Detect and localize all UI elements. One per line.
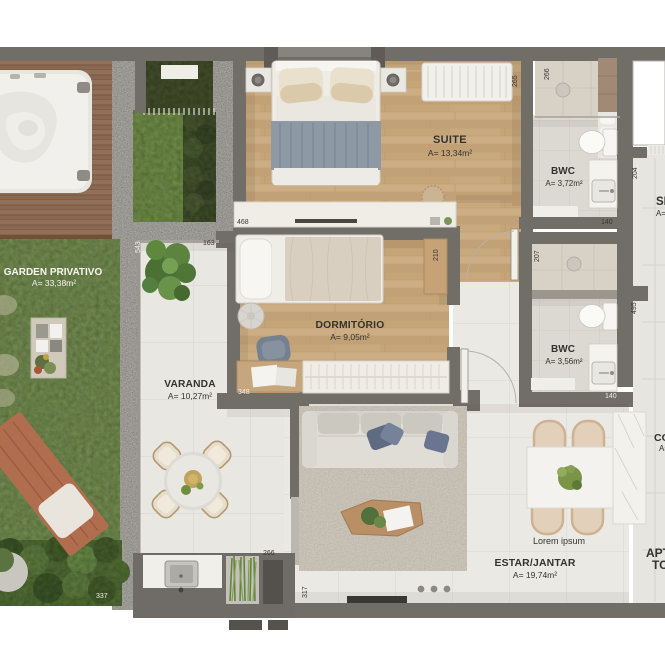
svg-text:140: 140	[601, 219, 613, 226]
svg-text:SE: SE	[656, 196, 665, 208]
svg-text:468: 468	[237, 219, 249, 226]
svg-text:A= 3,56m²: A= 3,56m²	[545, 357, 582, 366]
svg-text:204: 204	[632, 167, 639, 179]
svg-text:COZ: COZ	[654, 432, 665, 444]
svg-text:A=: A=	[659, 444, 665, 453]
svg-text:495: 495	[631, 302, 638, 314]
svg-text:A= 3,72m²: A= 3,72m²	[545, 179, 582, 188]
svg-text:BWC: BWC	[551, 344, 575, 355]
svg-text:140: 140	[605, 393, 617, 400]
svg-text:A= 33,38m²: A= 33,38m²	[32, 278, 76, 288]
svg-text:317: 317	[302, 586, 309, 598]
svg-text:Lorem ipsum: Lorem ipsum	[533, 536, 585, 546]
svg-text:163: 163	[203, 240, 215, 247]
svg-text:VARANDA: VARANDA	[164, 379, 216, 390]
svg-text:GARDEN PRIVATIVO: GARDEN PRIVATIVO	[4, 267, 103, 278]
svg-text:ESTAR/JANTAR: ESTAR/JANTAR	[494, 558, 575, 569]
svg-text:A= 9,05m²: A= 9,05m²	[330, 332, 370, 342]
svg-text:266: 266	[544, 68, 551, 80]
svg-text:207: 207	[534, 250, 541, 262]
svg-text:BWC: BWC	[551, 166, 575, 177]
svg-text:543: 543	[135, 241, 142, 253]
svg-text:SUITE: SUITE	[433, 134, 467, 146]
svg-text:DORMITÓRIO: DORMITÓRIO	[316, 318, 385, 331]
svg-text:265: 265	[512, 75, 519, 87]
svg-text:A= 19,74m²: A= 19,74m²	[513, 570, 557, 580]
svg-text:210: 210	[433, 249, 440, 261]
svg-text:A=: A=	[656, 209, 665, 218]
svg-text:337: 337	[96, 593, 108, 600]
svg-text:266: 266	[263, 550, 275, 557]
svg-text:A= 10,27m²: A= 10,27m²	[168, 391, 212, 401]
svg-text:A= 13,34m²: A= 13,34m²	[428, 148, 472, 158]
svg-text:TOT: TOT	[652, 558, 665, 572]
svg-text:348: 348	[238, 389, 250, 396]
